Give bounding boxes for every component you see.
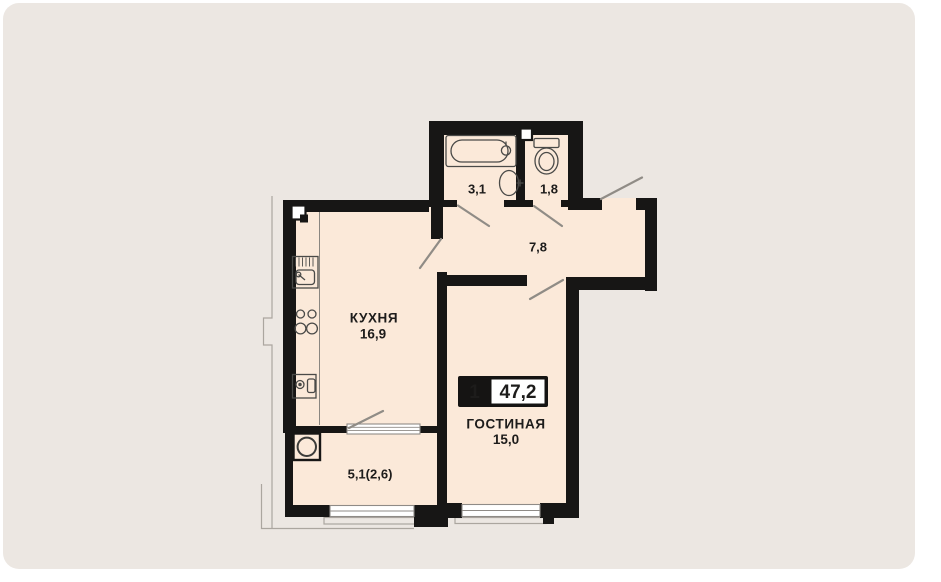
- wall-segment: [561, 200, 583, 207]
- badge-rooms-count: 1: [469, 382, 480, 403]
- wall-segment: [581, 198, 602, 210]
- kitchen-name-label: КУХНЯ: [350, 311, 398, 326]
- wall-segment: [429, 121, 583, 135]
- wall-segment: [540, 503, 579, 518]
- wall-segment: [566, 277, 579, 518]
- wall-segment: [504, 200, 533, 207]
- vent-shaft-icon: [521, 129, 533, 141]
- wall-segment: [285, 426, 293, 517]
- area-badge: 1 47,2: [458, 376, 548, 407]
- wall-segment: [566, 277, 657, 290]
- wall-segment: [543, 517, 554, 524]
- toilet-area-label: 1,8: [540, 182, 558, 197]
- kitchen-area-label: 16,9: [360, 327, 386, 342]
- wall-segment: [568, 121, 583, 210]
- wall-segment: [516, 133, 525, 207]
- bathroom-area-label: 3,1: [468, 182, 486, 197]
- wall-segment: [431, 205, 443, 239]
- wall-segment: [437, 272, 447, 518]
- living-name-label: ГОСТИНАЯ: [466, 417, 545, 432]
- wall-segment: [429, 121, 444, 207]
- hallway-area-label: 7,8: [529, 240, 547, 255]
- wall-segment: [420, 426, 447, 433]
- wall-segment: [285, 426, 347, 433]
- badge-total-area: 47,2: [500, 382, 537, 403]
- balcony-door-window: [347, 424, 420, 434]
- floor-plan-viewer: 3,1 1,8 7,8 КУХНЯ 16,9 ГОСТИНАЯ 15,0 5,1…: [0, 0, 941, 582]
- balcony-area-label: 5,1(2,6): [348, 467, 393, 482]
- wall-segment: [414, 505, 448, 527]
- wall-segment: [446, 503, 462, 518]
- duct-icon: [300, 215, 308, 223]
- wall-segment: [437, 275, 527, 286]
- living-area-label: 15,0: [493, 432, 519, 447]
- wall-segment: [285, 505, 330, 517]
- floor-plan-canvas: 3,1 1,8 7,8 КУХНЯ 16,9 ГОСТИНАЯ 15,0 5,1…: [0, 0, 941, 582]
